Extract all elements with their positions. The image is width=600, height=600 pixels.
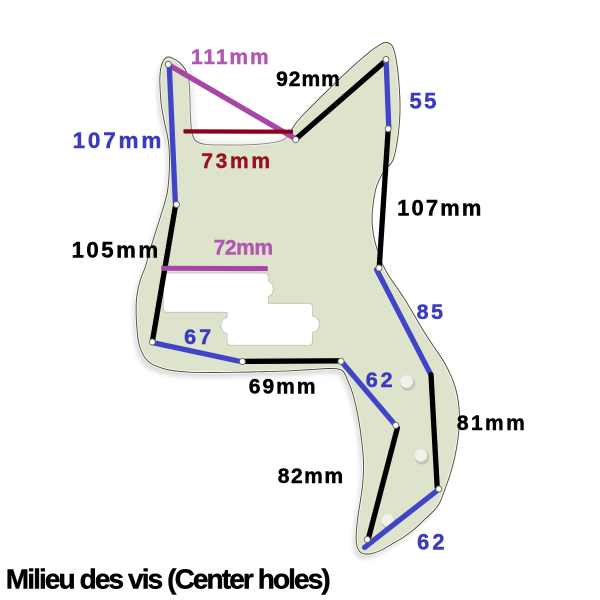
svg-text:62: 62 bbox=[366, 367, 396, 392]
svg-text:69mm: 69mm bbox=[249, 375, 318, 398]
svg-text:85: 85 bbox=[417, 300, 446, 324]
svg-text:Milieu des vis (Center holes): Milieu des vis (Center holes) bbox=[6, 564, 330, 595]
svg-text:105mm: 105mm bbox=[72, 238, 161, 263]
svg-text:92mm: 92mm bbox=[276, 68, 341, 91]
svg-text:107mm: 107mm bbox=[397, 196, 483, 221]
svg-text:72mm: 72mm bbox=[214, 237, 273, 260]
svg-text:81mm: 81mm bbox=[457, 412, 527, 435]
svg-text:111mm: 111mm bbox=[191, 46, 271, 69]
svg-text:67: 67 bbox=[184, 324, 214, 349]
svg-text:55: 55 bbox=[410, 89, 439, 114]
svg-text:82mm: 82mm bbox=[278, 465, 345, 488]
svg-text:73mm: 73mm bbox=[201, 150, 273, 173]
svg-text:62: 62 bbox=[417, 529, 448, 554]
svg-text:107mm: 107mm bbox=[73, 128, 165, 153]
